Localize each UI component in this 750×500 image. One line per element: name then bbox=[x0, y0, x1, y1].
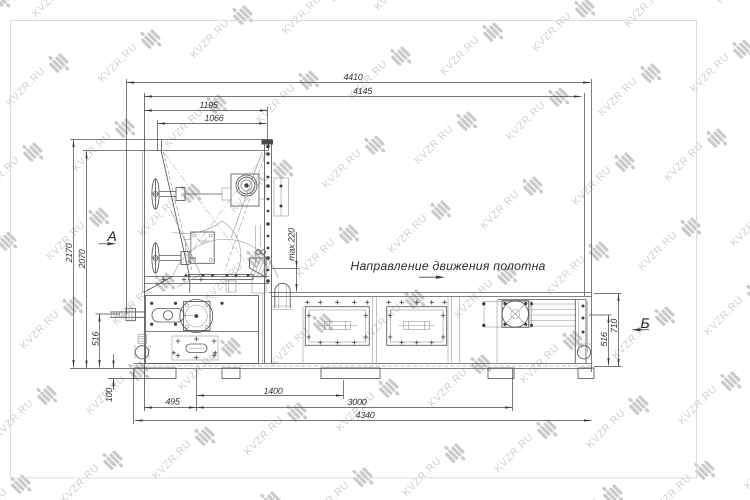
svg-text:А: А bbox=[106, 228, 116, 244]
svg-text:1066: 1066 bbox=[204, 113, 223, 123]
svg-text:4340: 4340 bbox=[355, 410, 374, 420]
svg-text:1195: 1195 bbox=[199, 100, 219, 110]
svg-text:516: 516 bbox=[599, 332, 609, 347]
svg-text:3000: 3000 bbox=[347, 397, 366, 407]
svg-text:2170: 2170 bbox=[64, 243, 74, 263]
svg-text:100: 100 bbox=[104, 388, 114, 403]
svg-text:4410: 4410 bbox=[343, 72, 362, 82]
svg-text:Направление движения полотна: Направление движения полотна bbox=[350, 259, 545, 273]
svg-text:495: 495 bbox=[165, 397, 181, 407]
svg-text:max 220: max 220 bbox=[286, 228, 296, 261]
svg-text:Б: Б bbox=[640, 315, 649, 331]
svg-text:516: 516 bbox=[91, 332, 101, 347]
svg-text:4145: 4145 bbox=[353, 86, 373, 96]
svg-text:2070: 2070 bbox=[77, 249, 87, 269]
svg-text:710: 710 bbox=[609, 319, 619, 334]
svg-text:1400: 1400 bbox=[263, 386, 282, 396]
